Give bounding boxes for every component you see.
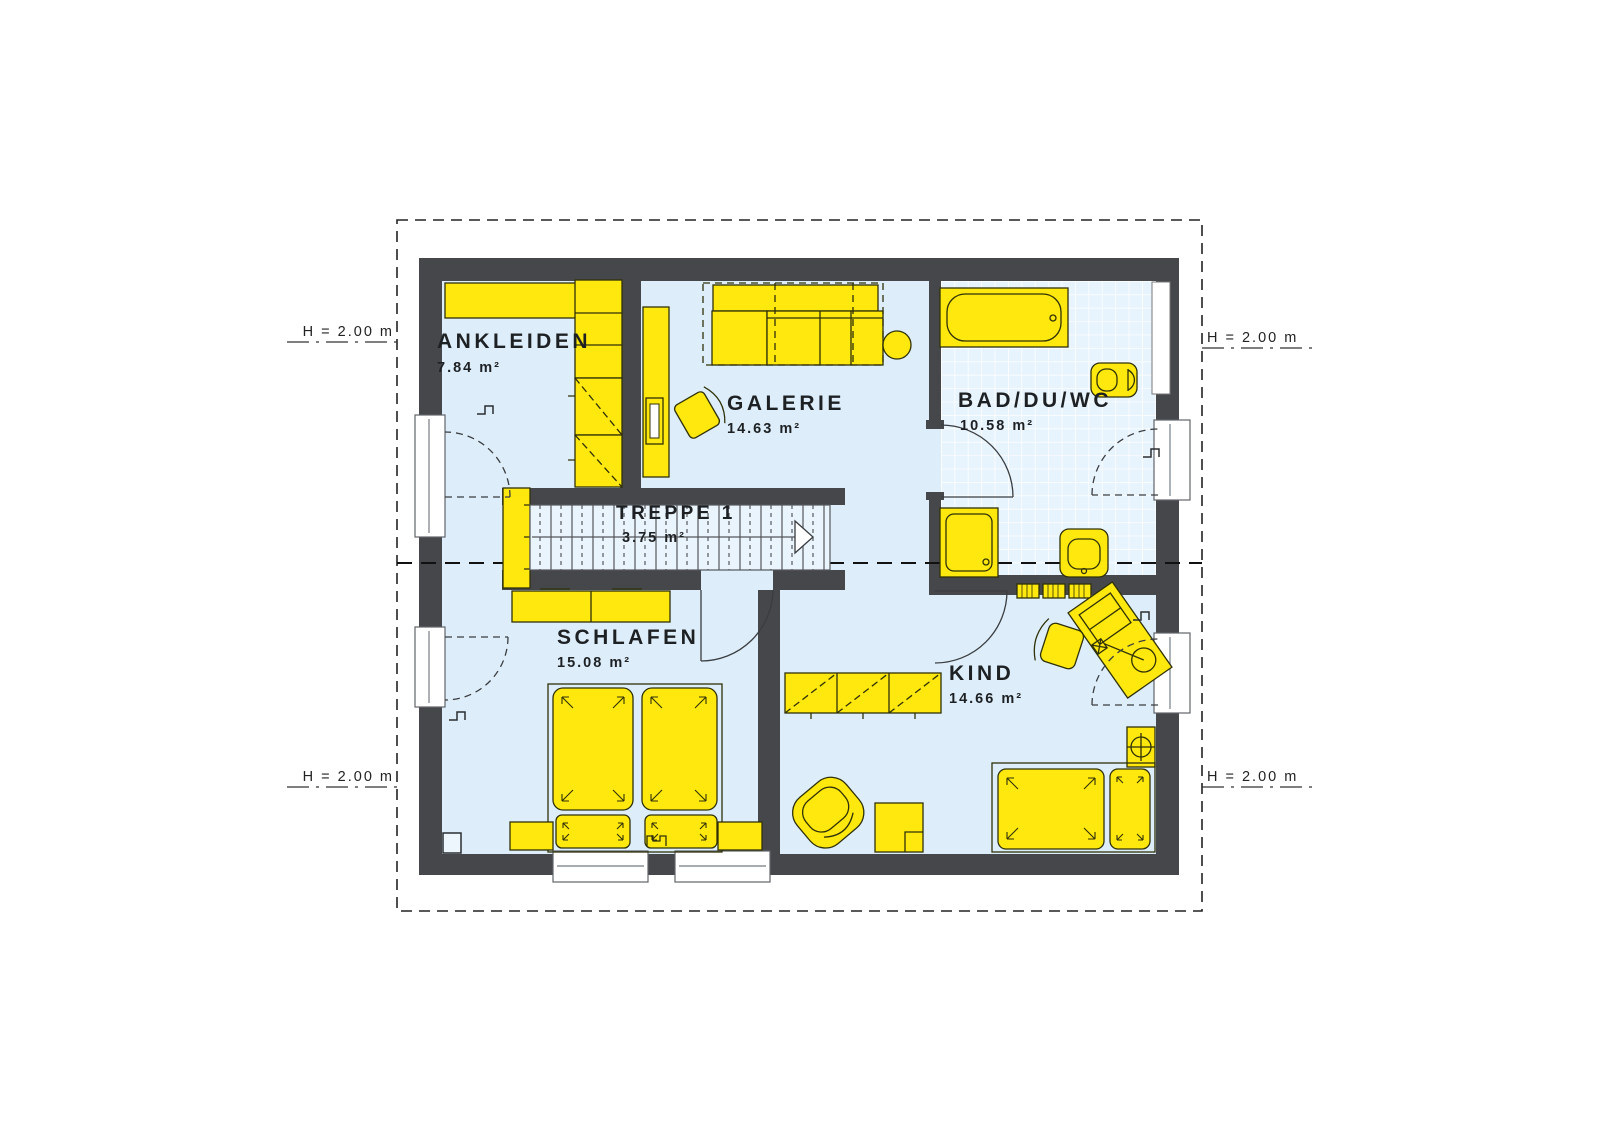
label-treppe: TREPPE 1 (616, 503, 736, 524)
wardrobe-side (575, 280, 622, 378)
side-table-round (883, 331, 911, 359)
pillow-right (645, 815, 717, 848)
area-ankleiden: 7.84 m² (437, 360, 501, 376)
bed-platform-right (718, 822, 762, 850)
corner-niche (443, 833, 461, 853)
galerie-monitor-screen (650, 404, 659, 438)
bathtub (940, 288, 1068, 347)
kind-mattress (998, 769, 1104, 849)
wall-bottom (419, 854, 1179, 875)
wall-stair-bottom-left (502, 570, 701, 590)
wall-bath-left-upper (929, 281, 941, 425)
shower (940, 508, 998, 577)
wall-stair-bottom-right (773, 570, 845, 590)
label-schlafen: SCHLAFEN (557, 626, 699, 649)
pillow-left (556, 815, 630, 848)
kind-wardrobe (785, 673, 941, 713)
label-galerie: GALERIE (727, 392, 845, 415)
radiator-segment (1043, 584, 1065, 598)
sofa-seat-right (767, 311, 883, 365)
area-kind: 14.66 m² (949, 691, 1023, 707)
height-label-right-bottom: H = 2.00 m (1207, 769, 1298, 785)
height-label-right-top: H = 2.00 m (1207, 330, 1298, 346)
area-schlafen: 15.08 m² (557, 655, 631, 671)
area-treppe: 3.75 m² (622, 530, 686, 546)
kind-radiator (1017, 584, 1091, 598)
washbasin (1060, 529, 1108, 577)
mattress-right (642, 688, 717, 810)
floorplan-page: H = 2.00 m H = 2.00 m H = 2.00 m H = 2.0… (0, 0, 1600, 1132)
galerie-desk (643, 307, 669, 477)
radiator-segment (1017, 584, 1039, 598)
window-schlafen-left (415, 627, 445, 707)
area-galerie: 14.63 m² (727, 421, 801, 437)
kind-pillow (1110, 769, 1150, 849)
window-bath-right (1154, 420, 1190, 500)
wall-bath-left-lower (929, 497, 941, 577)
sofa-seat-left (712, 311, 767, 365)
label-ankleiden: ANKLEIDEN (437, 330, 591, 353)
label-kind: KIND (949, 662, 1014, 685)
stair-side-cabinet (503, 488, 530, 588)
mattress-left (553, 688, 633, 810)
radiator-segment (1069, 584, 1091, 598)
wall-top (419, 258, 1179, 281)
label-bad: BAD/DU/WC (958, 389, 1112, 412)
wardrobe-top (445, 283, 583, 318)
installation-shaft (1152, 282, 1170, 394)
bed-platform-left (510, 822, 553, 850)
height-label-left-bottom: H = 2.00 m (303, 769, 394, 785)
wall-ankleiden-galerie (620, 281, 641, 488)
area-bad: 10.58 m² (960, 418, 1034, 434)
floorplan-canvas: H = 2.00 m H = 2.00 m H = 2.00 m H = 2.0… (0, 0, 1600, 1132)
height-label-left-top: H = 2.00 m (303, 324, 394, 340)
window-ankleiden (415, 415, 445, 537)
kind-side-table (875, 803, 923, 852)
